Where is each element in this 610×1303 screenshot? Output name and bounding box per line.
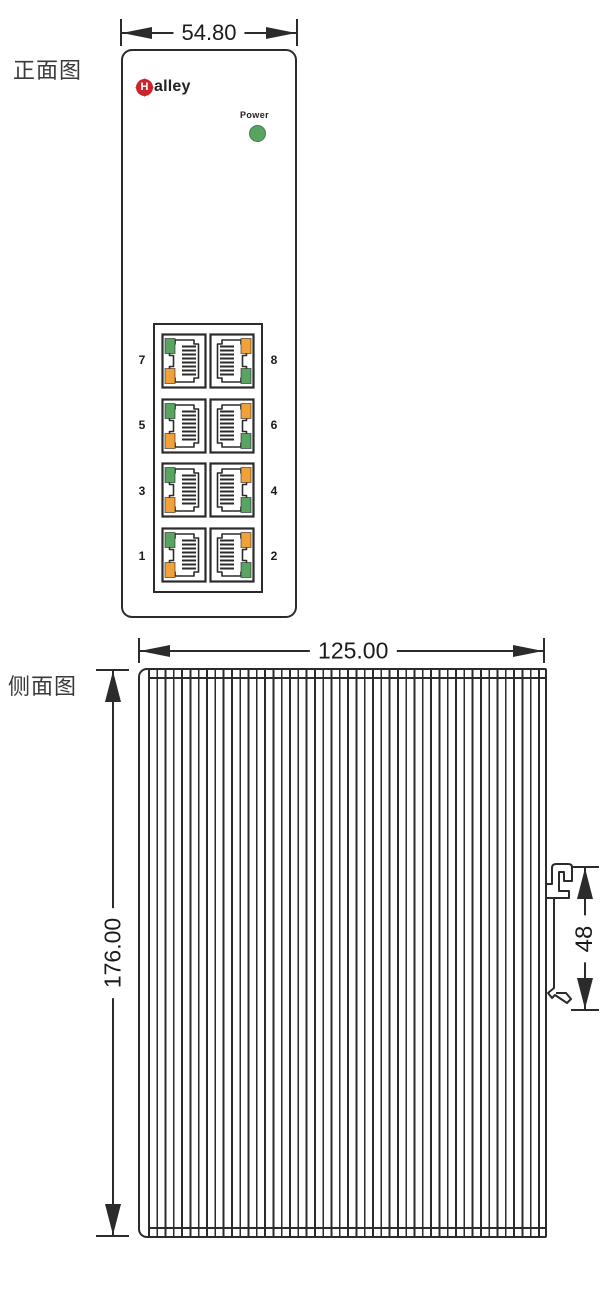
front-width-dimension: 54.80: [120, 19, 298, 46]
arrow-down-icon: [105, 1204, 121, 1235]
rj45-jack-icon: [161, 333, 207, 389]
led-green-icon: [241, 498, 251, 513]
arrow-right-icon: [266, 27, 296, 39]
port-number: 6: [263, 397, 285, 453]
arrow-left-icon: [122, 27, 152, 39]
rj45-jack-icon: [209, 462, 255, 518]
rj45-port-pair: [161, 333, 255, 389]
port-number: 4: [263, 463, 285, 519]
port-number: 2: [263, 528, 285, 584]
arrow-down-icon: [577, 978, 593, 1009]
brand-logo: H alley: [136, 78, 191, 96]
arrow-left-icon: [140, 645, 170, 657]
rj45-jack-icon: [209, 398, 255, 454]
led-orange-icon: [241, 532, 251, 547]
port-number: 7: [131, 332, 153, 388]
led-green-icon: [165, 468, 175, 483]
led-orange-icon: [241, 339, 251, 354]
port-section: 7 5 3 1: [131, 323, 291, 593]
led-orange-icon: [241, 403, 251, 418]
rj45-port-pair: [161, 527, 255, 583]
side-view-label: 侧面图: [8, 669, 77, 701]
rj45-jack-icon: [161, 398, 207, 454]
rj45-jack-icon: [161, 462, 207, 518]
logo-h-icon: H: [136, 79, 153, 96]
led-orange-icon: [165, 433, 175, 448]
side-panel-heatsink: [138, 668, 547, 1238]
led-orange-icon: [165, 498, 175, 513]
port-number: 3: [131, 463, 153, 519]
front-view-label: 正面图: [13, 53, 82, 85]
din-clip-dimension: 48: [571, 866, 599, 1011]
front-width-value: 54.80: [173, 20, 244, 46]
heatsink-fins: [148, 670, 545, 1236]
port-number: 5: [131, 397, 153, 453]
rj45-jack-icon: [161, 527, 207, 583]
rj45-port-pair: [161, 398, 255, 454]
fin-notch-line: [148, 677, 545, 679]
led-orange-icon: [241, 468, 251, 483]
technical-drawing: 正面图 54.80 H alley Power 7 5 3 1: [0, 0, 610, 1303]
side-width-dimension: 125.00: [138, 638, 545, 663]
front-panel: H alley Power 7 5 3 1: [121, 49, 297, 618]
port-numbers-left: 7 5 3 1: [131, 323, 153, 593]
brand-name: alley: [154, 78, 191, 96]
rj45-jack-icon: [209, 333, 255, 389]
led-green-icon: [241, 433, 251, 448]
rj45-port-pair: [161, 462, 255, 518]
side-width-value: 125.00: [310, 637, 396, 664]
led-green-icon: [241, 562, 251, 577]
power-led-indicator: [249, 125, 266, 142]
arrow-up-icon: [577, 868, 593, 899]
led-orange-icon: [165, 562, 175, 577]
side-height-dimension: 176.00: [96, 669, 129, 1237]
port-number: 1: [131, 528, 153, 584]
arrow-up-icon: [105, 671, 121, 702]
port-number: 8: [263, 332, 285, 388]
port-numbers-right: 8 6 4 2: [263, 323, 285, 593]
rj45-port-block: [153, 323, 263, 593]
led-green-icon: [165, 532, 175, 547]
side-height-value: 176.00: [99, 908, 126, 998]
fin-notch-line: [148, 1227, 545, 1229]
led-green-icon: [165, 403, 175, 418]
led-orange-icon: [165, 369, 175, 384]
rj45-jack-icon: [209, 527, 255, 583]
power-label: Power: [240, 110, 269, 120]
led-green-icon: [241, 369, 251, 384]
arrow-right-icon: [513, 645, 543, 657]
din-clip-value: 48: [571, 915, 599, 962]
din-rail-clip-icon: [541, 858, 575, 1014]
led-green-icon: [165, 339, 175, 354]
